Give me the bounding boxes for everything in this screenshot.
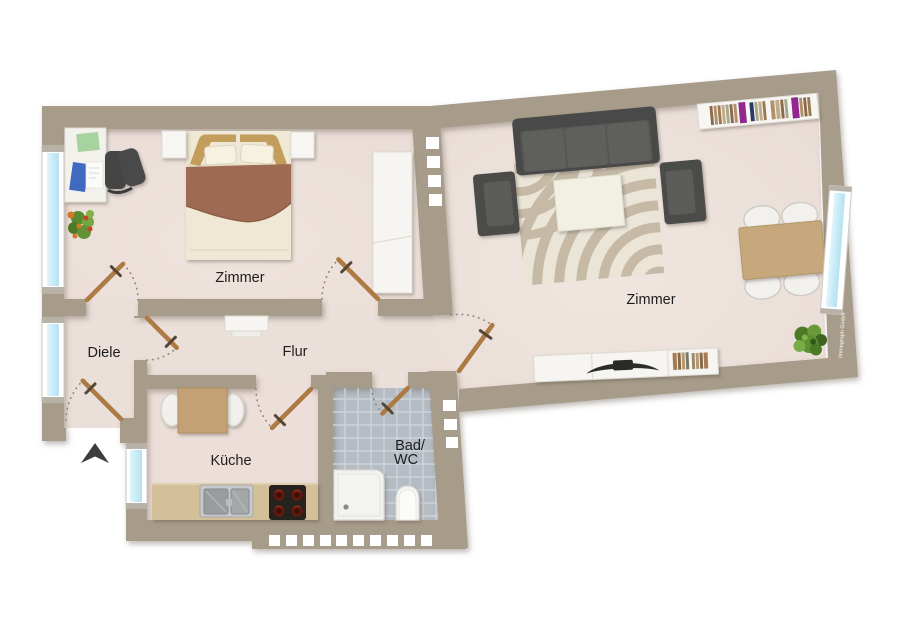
svg-text:Zimmer: Zimmer bbox=[215, 270, 264, 286]
svg-text:Flur: Flur bbox=[283, 344, 308, 360]
svg-text:WC: WC bbox=[394, 452, 418, 468]
svg-text:Diele: Diele bbox=[87, 345, 120, 361]
svg-text:Zimmer: Zimmer bbox=[626, 292, 675, 308]
svg-text:Küche: Küche bbox=[210, 453, 251, 469]
